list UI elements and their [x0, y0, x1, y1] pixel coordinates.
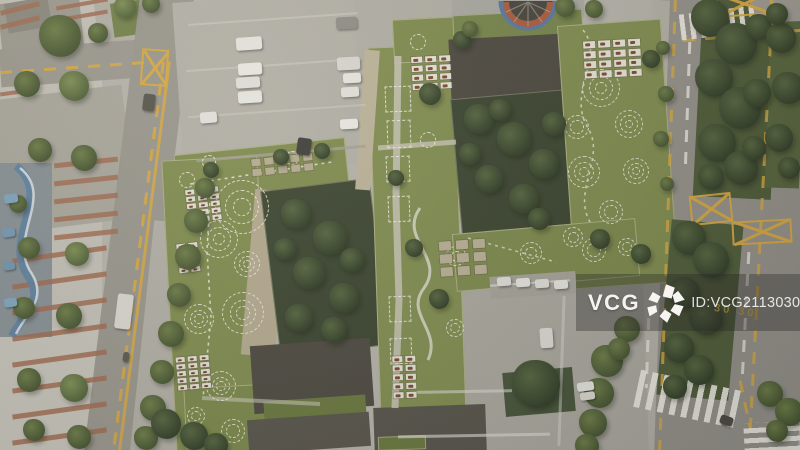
tree	[419, 83, 441, 105]
car	[516, 278, 531, 288]
skylight-dot	[179, 380, 183, 383]
skylight-dot	[212, 195, 216, 198]
skylight-unit	[412, 75, 423, 82]
skylight-dot	[427, 58, 432, 62]
aerial-photo: 30 30 VCG ID:VCG211303040192	[0, 0, 800, 450]
skylight-dot	[187, 191, 191, 194]
tree	[631, 244, 651, 264]
skylight-unit	[614, 59, 626, 67]
skylight-dot	[214, 209, 218, 212]
car	[142, 93, 156, 111]
watermark-id: ID:VCG211303040192	[691, 295, 800, 311]
skylight-unit	[598, 50, 610, 58]
skylight-dot	[202, 357, 206, 360]
skylight-dot	[203, 377, 207, 380]
skylight-dot	[442, 66, 447, 70]
tree	[167, 283, 191, 307]
skylight-dot	[587, 73, 593, 77]
skylight-unit	[406, 365, 416, 371]
car	[497, 277, 512, 287]
skylight-dot	[616, 61, 622, 65]
tree	[579, 409, 607, 437]
skylight-dot	[178, 359, 182, 362]
skylight-unit	[598, 40, 610, 48]
skylight-dot	[601, 52, 607, 56]
skylight-unit	[393, 392, 403, 398]
skylight-dot	[617, 71, 623, 75]
skylight-dot	[631, 50, 637, 54]
skylight-unit	[185, 189, 195, 195]
skylight-unit	[628, 49, 640, 57]
skylight-dot	[413, 58, 418, 62]
car	[336, 16, 358, 29]
car	[3, 193, 18, 204]
skylight-dot	[615, 41, 621, 45]
tree	[766, 420, 788, 442]
skylight-dot	[407, 357, 412, 360]
skylight-dot	[179, 373, 183, 376]
tree	[340, 248, 364, 272]
tree	[321, 317, 347, 343]
rooftop-planter-frame	[388, 196, 411, 223]
skylight-unit	[584, 61, 596, 69]
skylight-unit	[392, 356, 402, 362]
skylight-unit	[278, 166, 288, 174]
skylight-unit	[583, 41, 595, 49]
skylight-dot	[630, 40, 636, 44]
skylight-unit	[441, 267, 454, 277]
car	[535, 279, 550, 289]
tree	[429, 289, 449, 309]
skylight-dot	[442, 75, 447, 79]
tree	[497, 122, 531, 156]
tree	[698, 164, 724, 190]
skylight-dot	[203, 370, 207, 373]
tree	[28, 138, 52, 162]
tree	[529, 149, 559, 179]
rooftop-circle-pattern	[525, 247, 537, 259]
tree	[17, 368, 41, 392]
tree	[203, 162, 219, 178]
skylight-dot	[408, 375, 413, 378]
tree	[56, 303, 82, 329]
skylight-unit	[426, 65, 437, 72]
skylight-unit	[474, 252, 487, 262]
car	[554, 280, 569, 290]
skylight-unit	[426, 74, 437, 81]
skylight-dot	[189, 205, 193, 208]
tree	[88, 23, 108, 43]
tree	[585, 0, 603, 18]
skylight-unit	[188, 363, 197, 369]
skylight-unit	[393, 365, 403, 371]
skylight-dot	[408, 366, 413, 369]
tree	[204, 433, 228, 450]
car	[3, 261, 16, 271]
skylight-dot	[192, 385, 196, 388]
skylight-dot	[395, 385, 400, 388]
no-stopping-xbox-marking	[731, 218, 792, 245]
skylight-unit	[178, 385, 187, 391]
tree	[18, 237, 40, 259]
tree	[693, 242, 729, 278]
rooftop-skylight-cluster	[439, 238, 493, 280]
skylight-dot	[414, 76, 419, 80]
skylight-unit	[189, 370, 198, 376]
skylight-unit	[600, 70, 612, 78]
tree	[743, 79, 771, 107]
skylight-unit	[629, 59, 641, 67]
watermark: VCG ID:VCG211303040192	[576, 274, 800, 331]
skylight-dot	[408, 384, 413, 387]
skylight-dot	[428, 67, 433, 71]
skylight-dot	[441, 57, 446, 61]
rooftop-skylight-cluster	[392, 356, 420, 402]
skylight-dot	[600, 42, 606, 46]
rooftop-planter-frame	[389, 296, 412, 323]
car	[296, 137, 312, 156]
tree	[273, 149, 289, 165]
skylight-dot	[178, 366, 182, 369]
skylight-unit	[212, 214, 222, 220]
tree	[590, 229, 610, 249]
tree	[772, 72, 800, 104]
skylight-dot	[443, 84, 448, 88]
skylight-unit	[440, 82, 451, 89]
rooftop-circle-pattern	[213, 233, 225, 245]
rooftop-circle-pattern	[420, 132, 436, 148]
skylight-unit	[189, 377, 198, 383]
tree	[462, 21, 478, 37]
skylight-dot	[601, 62, 607, 66]
tree	[175, 244, 201, 270]
no-stopping-xbox-marking	[140, 48, 170, 87]
rooftop-circle-pattern	[604, 205, 617, 218]
skylight-unit	[406, 392, 416, 398]
tree	[158, 321, 184, 347]
skylight-dot	[586, 53, 592, 57]
car	[340, 119, 358, 130]
skylight-dot	[632, 70, 638, 74]
skylight-unit	[186, 196, 196, 202]
car	[1, 227, 15, 238]
car	[236, 36, 263, 51]
skylight-dot	[602, 72, 608, 76]
tree	[329, 283, 359, 313]
tree	[765, 124, 793, 152]
tree	[475, 165, 503, 193]
car	[200, 111, 218, 123]
tree	[778, 157, 800, 179]
skylight-unit	[584, 51, 596, 59]
tree	[542, 112, 566, 136]
skylight-unit	[613, 39, 625, 47]
skylight-unit	[176, 357, 185, 363]
rooftop-circle-pattern	[236, 306, 249, 319]
skylight-dot	[585, 43, 591, 47]
tree	[653, 131, 669, 147]
skylight-unit	[393, 383, 403, 389]
rooftop-circle-pattern	[570, 120, 583, 133]
skylight-dot	[190, 365, 194, 368]
skylight-unit	[440, 254, 453, 264]
xbox-diagonal	[690, 196, 732, 221]
skylight-unit	[457, 253, 470, 263]
skylight-dot	[631, 60, 637, 64]
tree	[663, 375, 687, 399]
skylight-unit	[201, 369, 210, 375]
tree	[293, 257, 325, 289]
tree	[512, 360, 560, 408]
tree	[195, 178, 215, 198]
rooftop-circle-pattern	[568, 232, 579, 243]
skylight-unit	[615, 69, 627, 77]
tree	[684, 355, 714, 385]
skylight-dot	[191, 372, 195, 375]
tree	[314, 143, 330, 159]
skylight-dot	[616, 51, 622, 55]
rooftop-circle-pattern	[194, 314, 204, 324]
tree	[742, 136, 766, 160]
skylight-unit	[406, 383, 416, 389]
skylight-unit	[200, 362, 209, 368]
tree	[405, 239, 423, 257]
tree	[65, 242, 89, 266]
skylight-unit	[176, 364, 185, 370]
skylight-unit	[405, 356, 415, 362]
car	[238, 62, 263, 76]
skylight-unit	[177, 371, 186, 377]
skylight-dot	[395, 376, 400, 379]
skylight-unit	[412, 66, 423, 73]
rooftop-circle-pattern	[179, 172, 195, 188]
tree	[766, 23, 796, 53]
tree	[23, 419, 45, 441]
tree	[14, 71, 40, 97]
skylight-unit	[457, 266, 470, 276]
skylight-dot	[213, 202, 217, 205]
car	[341, 87, 359, 98]
skylight-unit	[456, 240, 469, 250]
rooftop-circle-pattern	[450, 323, 460, 333]
skylight-dot	[414, 67, 419, 71]
rooftop-circle-pattern	[226, 424, 239, 437]
tree	[71, 145, 97, 171]
car	[343, 73, 361, 84]
car	[3, 297, 17, 308]
car	[238, 90, 263, 104]
skylight-unit	[599, 60, 611, 68]
skylight-unit	[440, 73, 451, 80]
rooftop-circle-pattern	[595, 82, 607, 94]
tree	[67, 425, 91, 449]
tree	[39, 15, 81, 57]
skylight-unit	[439, 241, 452, 251]
skylight-unit	[440, 64, 451, 71]
car	[337, 56, 361, 70]
skylight-unit	[406, 374, 416, 380]
rooftop-circle-pattern	[191, 411, 201, 421]
tree	[489, 99, 511, 121]
tree	[766, 3, 788, 25]
skylight-unit	[201, 376, 210, 382]
rooftop-circle-pattern	[410, 34, 426, 50]
rooftop-skylight-cluster	[583, 38, 645, 81]
skylight-dot	[214, 216, 218, 219]
tree	[388, 170, 404, 186]
skylight-unit	[211, 207, 221, 213]
skylight-unit	[425, 56, 436, 63]
skylight-dot	[191, 378, 195, 381]
skylight-unit	[291, 164, 301, 172]
tree	[658, 86, 674, 102]
skylight-dot	[202, 363, 206, 366]
skylight-unit	[187, 356, 196, 362]
tree	[660, 177, 674, 191]
skylight-unit	[252, 168, 262, 176]
skylight-unit	[439, 55, 450, 62]
skylight-dot	[190, 358, 194, 361]
skylight-unit	[411, 57, 422, 64]
tree	[459, 143, 481, 165]
rooftop-planter-frame	[385, 86, 412, 113]
tree	[281, 199, 311, 229]
no-stopping-xbox-marking	[689, 192, 734, 226]
tree	[528, 208, 550, 230]
skylight-unit	[393, 374, 403, 380]
skylight-unit	[202, 383, 211, 389]
tree	[274, 238, 296, 260]
tree	[60, 374, 88, 402]
skylight-dot	[428, 76, 433, 80]
car	[539, 328, 553, 349]
skylight-unit	[190, 384, 199, 390]
rooftop-planter-frame	[387, 120, 412, 149]
skylight-dot	[395, 367, 400, 370]
car	[236, 76, 261, 89]
skylight-dot	[394, 358, 399, 361]
tree	[184, 209, 208, 233]
skylight-unit	[290, 154, 300, 162]
skylight-unit	[177, 378, 186, 384]
skylight-unit	[199, 355, 208, 361]
skylight-unit	[630, 69, 642, 77]
tree	[656, 41, 670, 55]
skylight-dot	[586, 63, 592, 67]
tree	[59, 71, 89, 101]
skylight-dot	[180, 386, 184, 389]
skylight-unit	[211, 200, 221, 206]
skylight-unit	[304, 163, 314, 171]
skylight-unit	[265, 167, 275, 175]
skylight-unit	[473, 239, 486, 249]
skylight-unit	[585, 71, 597, 79]
skylight-dot	[201, 204, 205, 207]
vcg-flower-logo-icon	[644, 280, 688, 326]
tree	[285, 304, 313, 332]
skylight-dot	[409, 393, 414, 396]
rooftop-circle-pattern	[216, 381, 226, 391]
tree	[575, 434, 599, 450]
skylight-unit	[613, 49, 625, 57]
watermark-brand: VCG	[588, 290, 640, 316]
rooftop-circle-pattern	[233, 198, 250, 215]
skylight-unit	[628, 39, 640, 47]
skylight-unit	[199, 202, 209, 208]
tree	[608, 338, 630, 360]
skylight-unit	[251, 159, 261, 167]
tree	[151, 409, 181, 439]
skylight-dot	[204, 384, 208, 387]
rooftop-skylight-cluster	[176, 354, 215, 392]
skylight-dot	[396, 394, 401, 397]
tree	[150, 360, 174, 384]
skylight-unit	[474, 265, 487, 275]
skylight-dot	[188, 198, 192, 201]
tree	[313, 221, 347, 255]
